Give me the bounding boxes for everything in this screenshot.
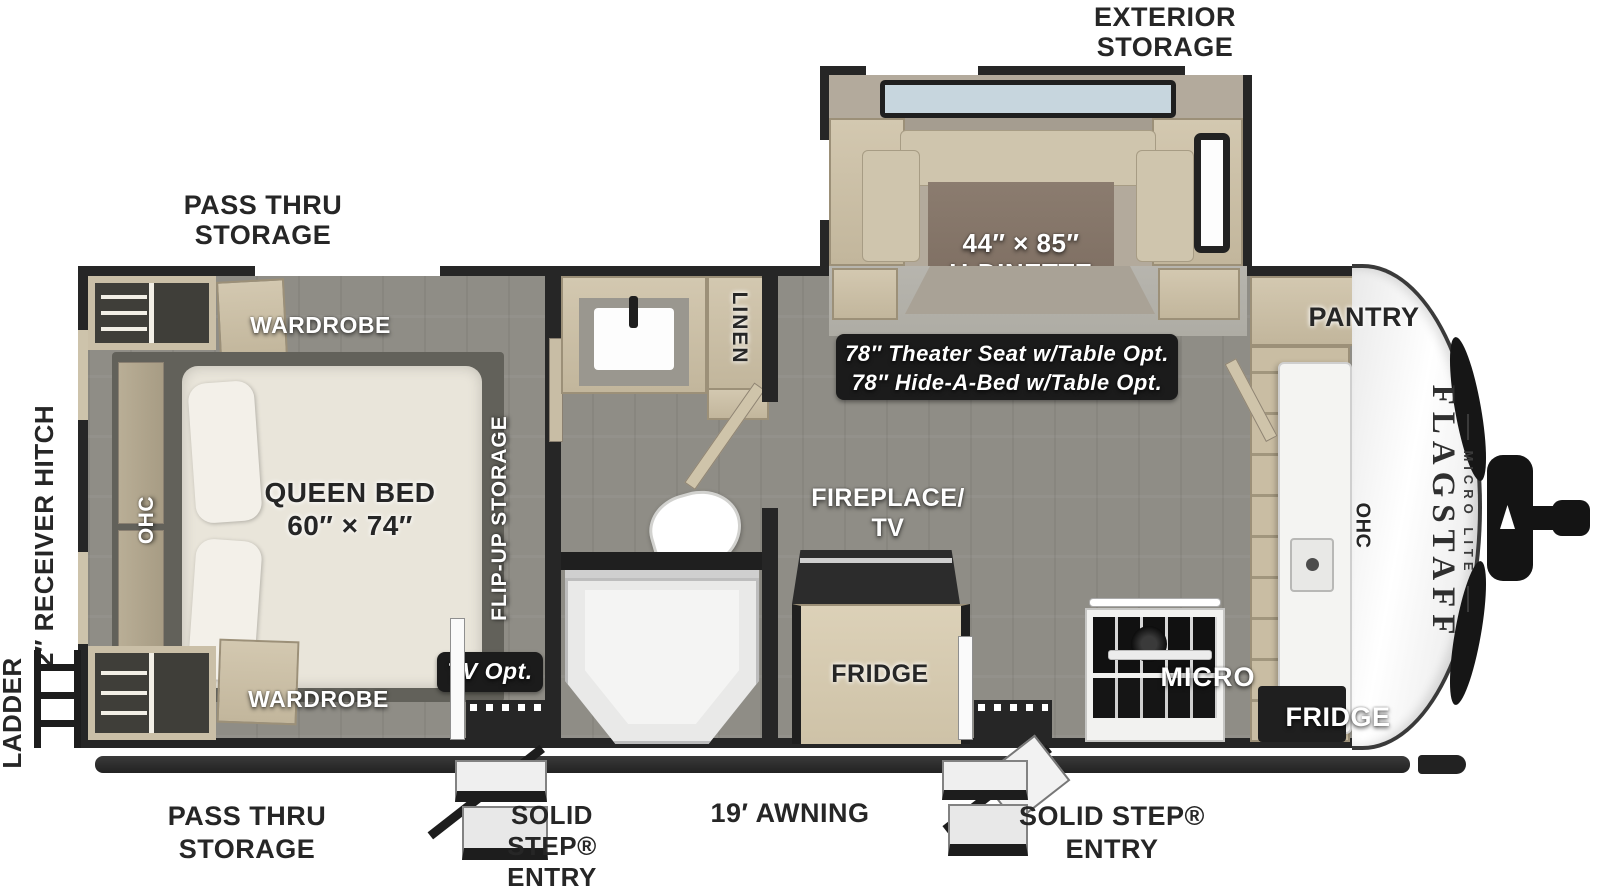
sink-faucet: [1306, 558, 1319, 571]
micro-label: MICRO: [1138, 662, 1278, 693]
pass-thru-storage-top-label: PASS THRU STORAGE: [138, 190, 388, 250]
shelf-board: [101, 311, 147, 315]
theater-seat-footprint: [905, 266, 1155, 314]
flip-up-storage-label: FLIP-UP STORAGE: [488, 383, 512, 653]
brand-dash-left: [1468, 414, 1470, 440]
theater-option-line1: 78″ Theater Seat w/Table Opt.: [836, 339, 1178, 368]
range-handle: [1089, 598, 1221, 607]
linen-text: LINEN: [727, 273, 751, 383]
wardrobe-bottom-label: WARDROBE: [236, 686, 401, 712]
pass-thru-shelf-top: [88, 276, 216, 350]
left-wall-hatch-lower: [78, 552, 88, 644]
fridge-center-text: FRIDGE: [810, 660, 950, 689]
brand-sub: MICRO LITE: [1461, 450, 1476, 575]
brand-dash-right: [1468, 586, 1470, 612]
shelf-divider: [149, 283, 154, 343]
ladder-rung: [38, 664, 78, 671]
ladder-text: LADDER: [0, 638, 28, 788]
bath-right-wall-lower: [762, 508, 778, 748]
pass-thru-bottom-line2: STORAGE: [122, 833, 372, 866]
shelf-board: [101, 711, 147, 715]
shelf-board: [101, 671, 147, 675]
entry-mat-right-dots: [978, 704, 1048, 711]
brand-logo: MICRO LITE FLAGSTAFF: [1414, 358, 1476, 668]
ohc-bed-label: OHC: [135, 460, 159, 580]
entry-door-right: [958, 636, 973, 740]
micro-text: MICRO: [1138, 662, 1278, 693]
theater-option-line2: 78″ Hide-A-Bed w/Table Opt.: [836, 368, 1178, 397]
pass-thru-storage-bottom-label: PASS THRU STORAGE: [122, 800, 372, 866]
pass-thru-shelf-bottom: [88, 646, 216, 740]
ohc-kitchen-label: OHC: [1351, 476, 1374, 576]
queen-bed-name: QUEEN BED: [250, 476, 450, 509]
step-right-line2: ENTRY: [972, 833, 1252, 866]
fireplace-line1: FIREPLACE/: [798, 483, 978, 513]
ladder-rung: [38, 692, 78, 699]
slideout-right-window: [1194, 133, 1230, 253]
queen-bed-label: QUEEN BED 60″ × 74″: [250, 476, 450, 542]
wardrobe-bottom-text: WARDROBE: [236, 686, 401, 712]
pantry-label: PANTRY: [1296, 302, 1432, 333]
floorplan-canvas: EXTERIOR STORAGE PASS THRU STORAGE 44″ ×…: [0, 0, 1600, 892]
wardrobe-top-label: WARDROBE: [238, 312, 403, 338]
shower-rim: [565, 570, 759, 578]
step-left-line3: ENTRY: [452, 862, 652, 892]
fireplace-tv-label: FIREPLACE/ TV: [798, 483, 978, 543]
bedroom-top-window: [255, 266, 440, 276]
fireplace-line2: TV: [798, 513, 978, 543]
steps-left-tread1: [455, 760, 547, 802]
shelf-board: [101, 691, 147, 695]
shelf-board: [101, 327, 147, 331]
pass-thru-top-line1: PASS THRU: [138, 190, 388, 220]
fridge-center-label: FRIDGE: [810, 660, 950, 689]
shelf-divider: [149, 653, 154, 733]
dinette-side-cushion-left: [862, 150, 920, 262]
wardrobe-top-text: WARDROBE: [238, 312, 403, 338]
brand-sub-row: MICRO LITE: [1461, 358, 1476, 668]
vanity-faucet: [629, 296, 638, 328]
shower-frame: [561, 552, 763, 570]
dinette-step-left: [832, 268, 898, 320]
micro-tray: [1108, 650, 1212, 660]
hitch-coupler: [1552, 500, 1590, 536]
step-right-line1: SOLID STEP®: [972, 800, 1252, 833]
step-left-line2: STEP®: [452, 831, 652, 862]
entry-mat-left-dots: [470, 704, 544, 711]
solid-step-entry-right-label: SOLID STEP® ENTRY: [972, 800, 1252, 866]
pass-thru-top-line2: STORAGE: [138, 220, 388, 250]
exterior-storage-label: EXTERIOR STORAGE: [1040, 2, 1290, 62]
awning-label: 19′ AWNING: [690, 798, 890, 829]
theater-option-label: 78″ Theater Seat w/Table Opt. 78″ Hide-A…: [836, 339, 1178, 397]
pass-thru-bottom-line1: PASS THRU: [122, 800, 372, 833]
solid-step-entry-left-label: SOLID STEP® ENTRY: [452, 800, 652, 892]
left-wall-hatch-upper: [78, 330, 88, 420]
fridge-right-label: FRIDGE: [1268, 702, 1408, 733]
fireplace-tv-trim: [800, 558, 952, 563]
slideout-left-window: [820, 140, 829, 220]
slideout-top-window-left: [866, 66, 978, 75]
ladder-rung: [38, 720, 78, 727]
flip-up-storage-text: FLIP-UP STORAGE: [488, 383, 512, 653]
pantry-text: PANTRY: [1296, 302, 1432, 333]
brand-name: FLAGSTAFF: [1424, 358, 1461, 668]
step-left-line1: SOLID: [452, 800, 652, 831]
slideout-skylight: [880, 80, 1176, 118]
ohc-bed-text: OHC: [135, 460, 159, 580]
u-dinette-size: 44″ × 85″: [928, 228, 1114, 258]
slideout-top-window-right: [1185, 66, 1261, 75]
exterior-storage-line1: EXTERIOR: [1040, 2, 1290, 32]
fridge-right-text: FRIDGE: [1268, 702, 1408, 733]
ladder-label: LADDER: [0, 638, 28, 788]
awning-end-cap: [1418, 755, 1466, 774]
ohc-kitchen-text: OHC: [1351, 476, 1374, 576]
entry-door-left: [450, 618, 465, 740]
dinette-step-right: [1158, 268, 1240, 320]
exterior-storage-line2: STORAGE: [1040, 32, 1290, 62]
shelf-board: [101, 295, 147, 299]
awning-text: 19′ AWNING: [690, 798, 890, 829]
dinette-side-cushion-right: [1136, 150, 1194, 262]
queen-bed-size: 60″ × 74″: [250, 509, 450, 542]
dinette-back-cushion: [900, 130, 1156, 186]
awning-bar: [95, 756, 1410, 773]
steps-right-tread1: [942, 760, 1028, 800]
bath-right-wall-upper: [762, 266, 778, 402]
linen-label: LINEN: [727, 273, 751, 383]
